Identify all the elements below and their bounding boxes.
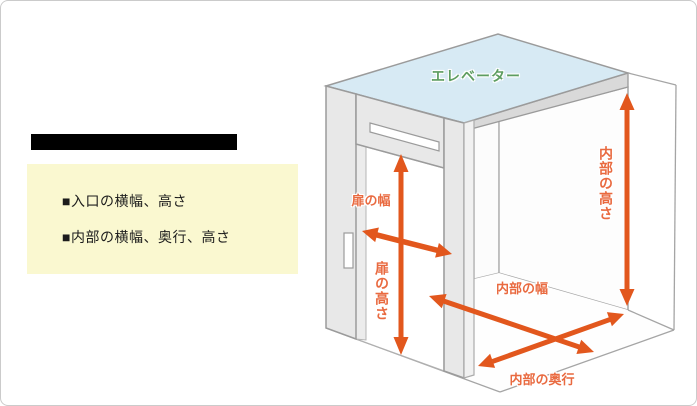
wall-left-pillar (326, 86, 356, 339)
interior-height-label: 内部の高さ (596, 146, 616, 221)
elevator-title-label: エレベーター (416, 66, 536, 86)
button-panel (344, 233, 353, 268)
interior-side-strip (474, 121, 499, 280)
door-width-label: 扉の幅 (335, 190, 407, 209)
interior-depth-label: 内部の奥行 (492, 369, 592, 388)
door-height-label: 扉の高さ (372, 261, 392, 321)
door-pocket-edge (356, 144, 366, 340)
door-column-side (464, 120, 474, 378)
door-column (444, 118, 464, 378)
page-frame: ■入口の横幅、高さ ■内部の横幅、奥行、高さ (0, 0, 697, 406)
interior-width-label: 内部の幅 (472, 278, 572, 297)
